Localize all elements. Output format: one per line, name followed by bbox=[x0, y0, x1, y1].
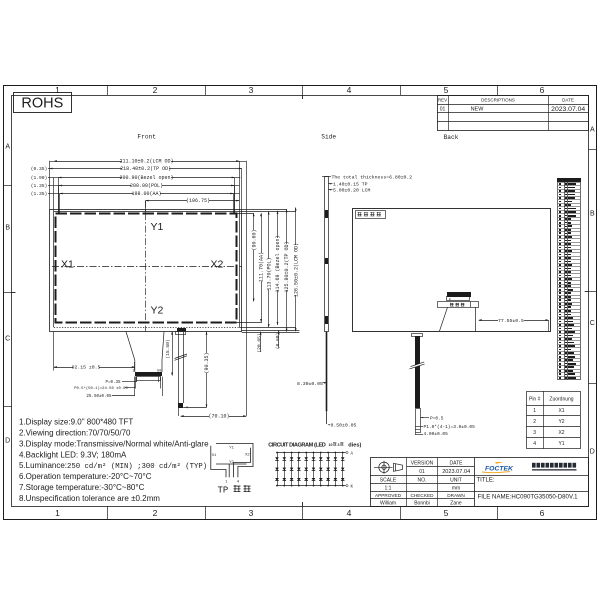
svg-text:10: 10 bbox=[329, 443, 333, 447]
svg-text:(70.10): (70.10) bbox=[208, 414, 229, 420]
svg-text:DRAWN: DRAWN bbox=[447, 493, 465, 498]
svg-text:A: A bbox=[5, 144, 10, 151]
svg-text:7.Storage temperature:-30°C~80: 7.Storage temperature:-30°C~80°C bbox=[19, 483, 145, 492]
svg-text:01: 01 bbox=[440, 107, 446, 113]
svg-text:Y2: Y2 bbox=[151, 305, 164, 317]
svg-text:X2: X2 bbox=[558, 430, 564, 436]
svg-text:Front: Front bbox=[137, 134, 156, 141]
svg-text:(8.60): (8.60) bbox=[275, 333, 281, 350]
svg-text:113.70(POL): 113.70(POL) bbox=[266, 257, 272, 290]
svg-text:218.40±0.2(TP OD): 218.40±0.2(TP OD) bbox=[120, 166, 171, 172]
svg-text:1:1: 1:1 bbox=[385, 485, 392, 491]
svg-text:X1: X1 bbox=[61, 259, 74, 271]
svg-text:5: 5 bbox=[444, 508, 449, 518]
svg-text:1: 1 bbox=[55, 508, 60, 518]
svg-text:126.50±0.2(LCM OD): 126.50±0.2(LCM OD) bbox=[293, 243, 299, 297]
svg-text:FILE NAME:HC090TG35050-D80V.1: FILE NAME:HC090TG35050-D80V.1 bbox=[478, 493, 579, 500]
svg-text:The total thickness=6.80±0.2: The total thickness=6.80±0.2 bbox=[332, 174, 413, 180]
svg-text:4: 4 bbox=[347, 85, 352, 95]
svg-text:Y2: Y2 bbox=[558, 419, 564, 425]
svg-text:UNIT: UNIT bbox=[450, 477, 462, 483]
svg-text:Y2: Y2 bbox=[229, 460, 234, 464]
svg-text:DATE: DATE bbox=[562, 98, 574, 103]
svg-text:VERSION: VERSION bbox=[411, 460, 434, 466]
svg-text:NEW: NEW bbox=[471, 107, 485, 113]
svg-text:CIRCUIT DIAGRAM (LED: CIRCUIT DIAGRAM (LED bbox=[268, 442, 326, 448]
svg-text:C: C bbox=[590, 320, 595, 327]
svg-text:1: 1 bbox=[132, 370, 134, 374]
svg-text:CHECKED: CHECKED bbox=[411, 493, 435, 498]
svg-text:1: 1 bbox=[55, 85, 60, 95]
svg-text:Pin #: Pin # bbox=[529, 396, 541, 402]
svg-text:REV: REV bbox=[438, 98, 447, 103]
svg-text:DESCRIPTIONS: DESCRIPTIONS bbox=[481, 98, 515, 103]
svg-text:B: B bbox=[5, 225, 10, 232]
svg-text:200.00(POL): 200.00(POL) bbox=[130, 183, 163, 189]
svg-text:(106.75): (106.75) bbox=[186, 198, 210, 204]
svg-text:50: 50 bbox=[157, 370, 161, 374]
svg-text:1.Display size:9.0" 800*480 T: 1.Display size:9.0" 800*480 TFT bbox=[19, 418, 133, 427]
svg-text:A: A bbox=[590, 127, 595, 134]
svg-text:APPROVED: APPROVED bbox=[375, 493, 402, 498]
svg-text:01: 01 bbox=[419, 469, 425, 475]
svg-text:P=0.35: P=0.35 bbox=[105, 381, 121, 385]
svg-text:25.50±0.05: 25.50±0.05 bbox=[86, 395, 112, 399]
svg-text:ROHS: ROHS bbox=[21, 95, 63, 111]
svg-text:(90.35): (90.35) bbox=[204, 352, 210, 373]
svg-text:P1.0*(4-1)=3.0±0.05: P1.0*(4-1)=3.0±0.05 bbox=[424, 424, 476, 430]
svg-text:6: 6 bbox=[540, 508, 545, 518]
svg-text:SCALE: SCALE bbox=[380, 477, 397, 483]
svg-text:D: D bbox=[5, 438, 10, 445]
svg-text:dies): dies) bbox=[348, 442, 361, 448]
svg-text:B: B bbox=[590, 211, 595, 218]
svg-text:1.40±0.15 TP: 1.40±0.15 TP bbox=[333, 182, 368, 188]
svg-text:4: 4 bbox=[533, 441, 536, 447]
svg-text:Y1: Y1 bbox=[229, 445, 234, 449]
svg-text:2: 2 bbox=[533, 419, 536, 425]
svg-text:2023.07.04: 2023.07.04 bbox=[442, 469, 470, 475]
svg-text:DATE: DATE bbox=[450, 460, 464, 466]
svg-text:125.80±0.2(TP OD): 125.80±0.2(TP OD) bbox=[284, 241, 290, 292]
svg-text:2023.07.04: 2023.07.04 bbox=[551, 106, 585, 113]
svg-text:2: 2 bbox=[153, 508, 158, 518]
svg-text:(90.60): (90.60) bbox=[251, 229, 257, 250]
svg-text:6: 6 bbox=[540, 85, 545, 95]
svg-text:Bonnbi: Bonnbi bbox=[414, 500, 430, 506]
svg-text:mm: mm bbox=[452, 485, 460, 491]
svg-text:(15.50): (15.50) bbox=[165, 339, 171, 358]
svg-text:(0.35): (0.35) bbox=[31, 166, 48, 172]
svg-text:3: 3 bbox=[249, 85, 254, 95]
svg-text:C: C bbox=[5, 336, 10, 343]
svg-text:6.Operation temperature:-20°C~: 6.Operation temperature:-20°C~70°C bbox=[19, 472, 152, 481]
svg-text:X1: X1 bbox=[212, 453, 217, 457]
svg-text:198.00(AA): 198.00(AA) bbox=[132, 191, 162, 197]
svg-text:(1.35): (1.35) bbox=[31, 191, 48, 197]
svg-text:5.Luminance:250 cd/m² (MIN) ;3: 5.Luminance:250 cd/m² (MIN) ;300 cd/m² (… bbox=[19, 461, 207, 471]
svg-text:D: D bbox=[590, 449, 595, 456]
svg-text:TP: TP bbox=[218, 486, 229, 496]
svg-text:Side: Side bbox=[321, 134, 336, 141]
svg-text:P=0.5: P=0.5 bbox=[430, 415, 444, 421]
svg-text:111.70(AA): 111.70(AA) bbox=[259, 252, 265, 282]
svg-text:Back: Back bbox=[444, 134, 459, 141]
svg-text:(1.90): (1.90) bbox=[31, 175, 48, 181]
svg-text:114.69 (Bezel open): 114.69 (Bezel open) bbox=[275, 235, 281, 292]
svg-text:8.Unspecification tolerance ar: 8.Unspecification tolerance are ±0.2mm bbox=[19, 494, 160, 503]
svg-text:3: 3 bbox=[249, 508, 254, 518]
svg-text:4.Backlight LED: 9.3V; 180mA: 4.Backlight LED: 9.3V; 180mA bbox=[19, 450, 127, 459]
svg-text:3: 3 bbox=[533, 430, 536, 436]
svg-text:Y1: Y1 bbox=[151, 221, 164, 233]
svg-text:77.55±0.5: 77.55±0.5 bbox=[498, 318, 524, 324]
svg-text:4: 4 bbox=[347, 508, 352, 518]
svg-text:NO.: NO. bbox=[418, 477, 427, 483]
svg-text:2: 2 bbox=[153, 85, 158, 95]
svg-text:TITLE:: TITLE: bbox=[477, 477, 495, 483]
svg-text:8.30±0.05: 8.30±0.05 bbox=[297, 381, 323, 387]
svg-text:5.00±0.20 LCM: 5.00±0.20 LCM bbox=[333, 188, 371, 194]
svg-text:(1.35): (1.35) bbox=[31, 183, 48, 189]
svg-text:5: 5 bbox=[444, 85, 449, 95]
svg-text:2.Viewing direction:70/70/50/7: 2.Viewing direction:70/70/50/70 bbox=[19, 429, 131, 438]
svg-text:211.10±0.2(LCM OD): 211.10±0.2(LCM OD) bbox=[120, 159, 174, 165]
svg-text:92.15 ±0.5: 92.15 ±0.5 bbox=[72, 365, 101, 371]
svg-text:200.90(Bezel open): 200.90(Bezel open) bbox=[120, 175, 174, 181]
svg-text:William: William bbox=[380, 500, 396, 506]
svg-text:Y1: Y1 bbox=[558, 441, 564, 447]
svg-text:X1: X1 bbox=[558, 408, 564, 414]
svg-text:X2: X2 bbox=[245, 452, 250, 456]
svg-text:3.Display mode:Transmissive/No: 3.Display mode:Transmissive/Normal white… bbox=[19, 439, 209, 448]
svg-text:4.00±0.05: 4.00±0.05 bbox=[424, 431, 449, 437]
svg-text:Zuordnung: Zuordnung bbox=[549, 396, 573, 402]
svg-text:(20.65): (20.65) bbox=[257, 333, 263, 352]
svg-text:P0.5*(50-1)=24.50 ±0.05: P0.5*(50-1)=24.50 ±0.05 bbox=[74, 386, 128, 391]
svg-text:Zane: Zane bbox=[450, 500, 462, 506]
svg-text:3: 3 bbox=[338, 443, 340, 447]
svg-text:0.50±0.05: 0.50±0.05 bbox=[331, 423, 357, 429]
svg-text:X2: X2 bbox=[211, 259, 224, 271]
svg-text:1: 1 bbox=[533, 408, 536, 414]
